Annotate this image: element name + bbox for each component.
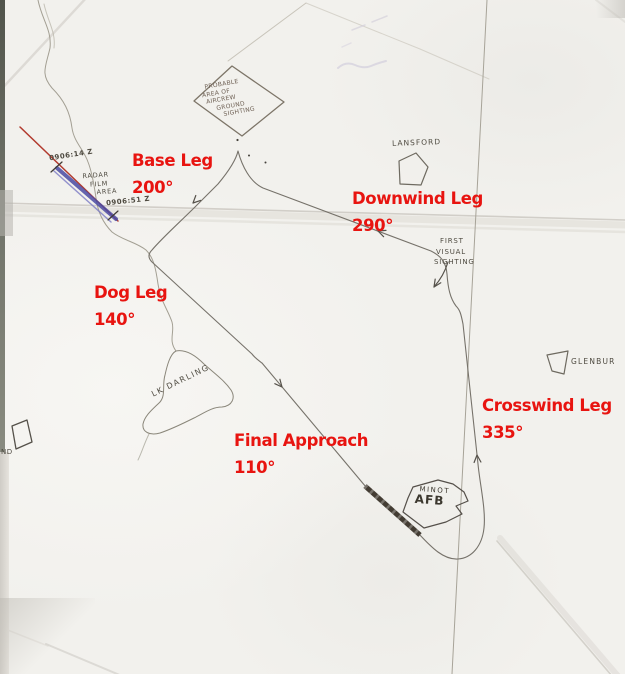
nd-partial-label: ND — [1, 448, 13, 456]
faint-line-top-left — [228, 3, 306, 61]
annotation-final-approach: Final Approach 110° — [234, 427, 368, 481]
lansford-marker — [399, 153, 428, 185]
pencil-dot-1 — [236, 139, 238, 141]
minot-afb-line2: AFB — [414, 492, 450, 508]
map-drawing — [0, 0, 625, 674]
annotation-crosswind-leg: Crosswind Leg 335° — [482, 392, 612, 446]
first-visual-line: VISUAL — [436, 247, 475, 258]
scan-edge-crease — [0, 190, 13, 236]
radar-film-area-label: RADAR FILM AREA — [82, 170, 117, 198]
leg-heading: 200° — [132, 174, 213, 201]
leg-name: Dog Leg — [94, 279, 167, 306]
leg-heading: 110° — [234, 454, 368, 481]
radar-film-line: AREA — [96, 187, 117, 197]
nd-town-box — [12, 420, 32, 449]
annotation-downwind-leg: Downwind Leg 290° — [352, 185, 483, 239]
leg-name: Base Leg — [132, 147, 213, 174]
faint-line-top-right — [306, 3, 489, 79]
glenburn-marker — [547, 351, 568, 374]
lansford-label: LANSFORD — [392, 137, 441, 148]
first-visual-sighting-label: FIRST VISUAL SIGHTING — [434, 236, 475, 268]
leg-name: Final Approach — [234, 427, 368, 454]
first-visual-line: SIGHTING — [434, 257, 475, 268]
pencil-dot-2 — [248, 155, 250, 157]
annotation-base-leg: Base Leg 200° — [132, 147, 213, 201]
erased-scribble-1 — [338, 61, 386, 68]
pencil-dot-3 — [265, 162, 267, 164]
leg-heading: 290° — [352, 212, 483, 239]
scan-corner-shadow-bl — [0, 598, 95, 674]
glenburn-label: GLENBUR — [571, 357, 616, 366]
runway-segment — [365, 486, 420, 535]
erased-scribble-3 — [342, 43, 351, 47]
crease-top-left — [0, 0, 88, 95]
leg-name: Downwind Leg — [352, 185, 483, 212]
crease-bottom-right-band — [500, 538, 618, 674]
scan-corner-shadow-tr — [596, 0, 625, 18]
scanned-flight-path-map: PROBABLE AREA OF AIRCREW GROUND SIGHTING… — [0, 0, 625, 674]
section-line — [452, 0, 487, 674]
erased-scribble-2 — [352, 16, 387, 30]
minot-afb-label: MINOT AFB — [412, 485, 450, 509]
annotation-dog-leg: Dog Leg 140° — [94, 279, 167, 333]
crease-bottom-right-line — [497, 541, 612, 674]
leg-name: Crosswind Leg — [482, 392, 612, 419]
leg-heading: 140° — [94, 306, 167, 333]
lake-outlet-stream — [138, 434, 149, 460]
leg-heading: 335° — [482, 419, 612, 446]
